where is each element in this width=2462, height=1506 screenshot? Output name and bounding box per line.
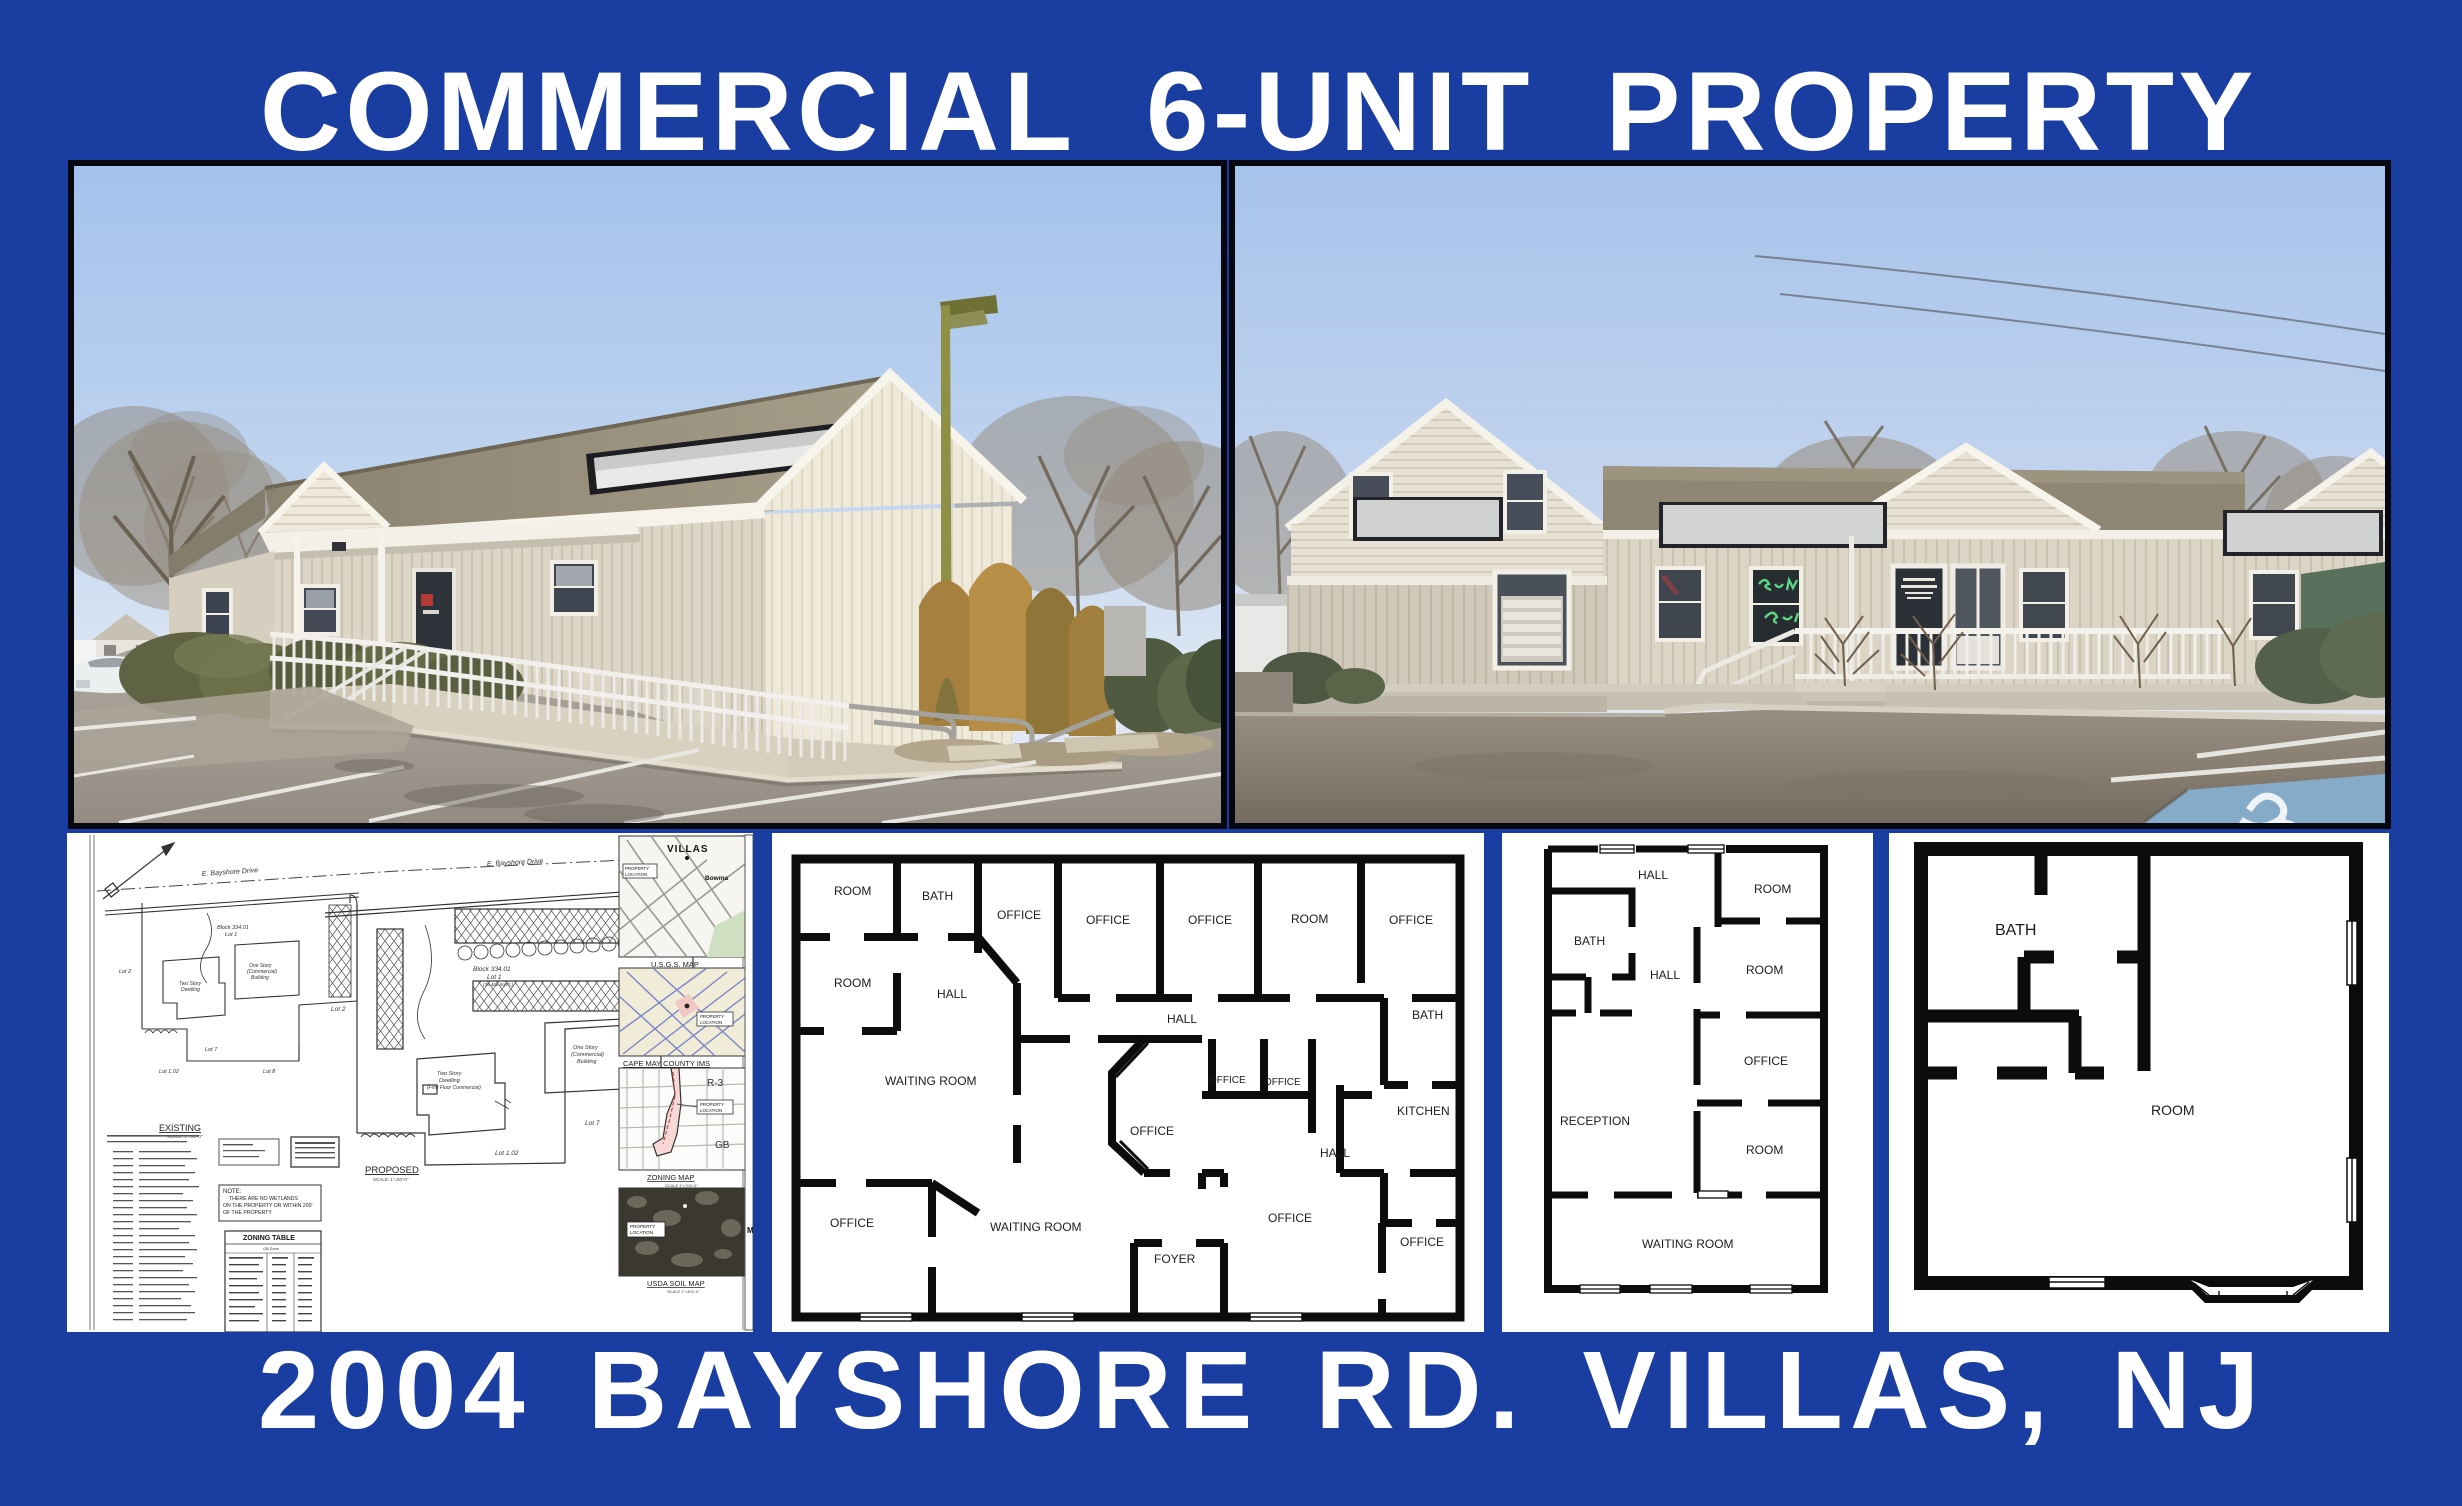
svg-text:BATH: BATH xyxy=(922,889,953,903)
svg-text:SCALE 1"=700'-0": SCALE 1"=700'-0" xyxy=(665,1183,698,1188)
svg-text:THERE ARE NO WETLANDS: THERE ARE NO WETLANDS xyxy=(229,1196,298,1202)
svg-text:ROOM: ROOM xyxy=(834,976,871,990)
svg-text:M: M xyxy=(747,1226,753,1235)
svg-text:(First Floor Commercial): (First Floor Commercial) xyxy=(427,1085,481,1091)
svg-text:Dwelling: Dwelling xyxy=(181,987,200,993)
svg-text:Block 334.01: Block 334.01 xyxy=(473,966,511,973)
svg-text:SCALE 1"=400'-0": SCALE 1"=400'-0" xyxy=(667,1289,700,1294)
svg-text:OFFICE: OFFICE xyxy=(1264,1077,1301,1088)
svg-text:R-3: R-3 xyxy=(707,1078,724,1089)
svg-text:OFFICE: OFFICE xyxy=(1389,913,1433,927)
svg-text:OFFICE: OFFICE xyxy=(997,908,1041,922)
svg-text:Building: Building xyxy=(577,1059,598,1065)
svg-text:HALL: HALL xyxy=(1638,868,1668,882)
svg-text:Lot 1: Lot 1 xyxy=(487,974,502,981)
svg-text:KITCHEN: KITCHEN xyxy=(1397,1104,1450,1118)
svg-text:Two Story: Two Story xyxy=(437,1071,463,1077)
svg-text:OFFICE: OFFICE xyxy=(1086,913,1130,927)
svg-text:ROOM: ROOM xyxy=(1746,963,1783,977)
svg-text:RECEPTION: RECEPTION xyxy=(1560,1114,1630,1128)
svg-text:OFFICE: OFFICE xyxy=(1209,1075,1246,1086)
svg-text:HALL: HALL xyxy=(1167,1012,1197,1026)
svg-text:ROOM: ROOM xyxy=(1291,912,1328,926)
svg-text:(39,462 Sq.Ft.): (39,462 Sq.Ft.) xyxy=(483,982,514,987)
svg-text:PROPOSED: PROPOSED xyxy=(365,1165,419,1176)
svg-text:VILLAS: VILLAS xyxy=(667,844,709,855)
svg-text:E. Bayshore Drive: E. Bayshore Drive xyxy=(202,867,259,878)
svg-text:OFFICE: OFFICE xyxy=(1400,1235,1444,1249)
svg-text:Lot 2: Lot 2 xyxy=(119,969,131,975)
svg-text:CAPE MAY COUNTY IMS: CAPE MAY COUNTY IMS xyxy=(623,1059,710,1068)
svg-text:WAITING ROOM: WAITING ROOM xyxy=(990,1220,1082,1234)
svg-text:Dwelling: Dwelling xyxy=(439,1078,461,1084)
svg-text:LOCATION: LOCATION xyxy=(625,872,647,877)
svg-text:PROPERTY: PROPERTY xyxy=(700,1102,724,1107)
svg-text:LOCATION: LOCATION xyxy=(630,1230,653,1235)
svg-text:OFFICE: OFFICE xyxy=(1744,1054,1788,1068)
svg-text:ROOM: ROOM xyxy=(1746,1143,1783,1157)
svg-text:ROOM: ROOM xyxy=(1754,882,1791,896)
svg-text:HALL: HALL xyxy=(937,987,967,1001)
svg-text:Block 334.01: Block 334.01 xyxy=(217,925,249,931)
svg-text:PROPERTY: PROPERTY xyxy=(625,866,649,871)
svg-text:BATH: BATH xyxy=(1995,922,2036,939)
svg-text:HALL: HALL xyxy=(1320,1146,1350,1160)
svg-text:ROOM: ROOM xyxy=(2151,1102,2195,1118)
svg-text:ZONING TABLE: ZONING TABLE xyxy=(243,1235,295,1242)
svg-text:PROPERTY: PROPERTY xyxy=(700,1014,724,1019)
svg-text:Lot 7: Lot 7 xyxy=(585,1120,600,1127)
svg-text:HALL: HALL xyxy=(1650,968,1680,982)
svg-text:PROPERTY: PROPERTY xyxy=(630,1224,655,1229)
svg-text:One Story: One Story xyxy=(573,1045,599,1051)
svg-text:WAITING ROOM: WAITING ROOM xyxy=(1642,1237,1734,1251)
svg-text:(Commercial): (Commercial) xyxy=(571,1052,604,1058)
svg-text:Building: Building xyxy=(251,975,269,981)
svg-text:Bowma: Bowma xyxy=(705,875,729,882)
svg-text:WAITING ROOM: WAITING ROOM xyxy=(885,1074,977,1088)
svg-text:NOTE:: NOTE: xyxy=(223,1189,242,1195)
svg-text:ZONING MAP: ZONING MAP xyxy=(647,1173,695,1182)
svg-text:SCALE: 1"=50'-0": SCALE: 1"=50'-0" xyxy=(373,1177,409,1182)
svg-text:Lot 1.02: Lot 1.02 xyxy=(159,1069,179,1075)
svg-text:OFFICE: OFFICE xyxy=(1268,1211,1312,1225)
svg-text:GB Zone: GB Zone xyxy=(263,1246,280,1251)
svg-text:BATH: BATH xyxy=(1574,934,1605,948)
svg-text:OF THE PROPERTY: OF THE PROPERTY xyxy=(223,1210,272,1216)
svg-text:BATH: BATH xyxy=(1412,1008,1443,1022)
svg-text:Lot 1.02: Lot 1.02 xyxy=(495,1150,519,1157)
svg-text:LOCATION: LOCATION xyxy=(700,1020,722,1025)
svg-text:USDA SOIL MAP: USDA SOIL MAP xyxy=(647,1279,705,1288)
svg-text:E. Bayshore Drive: E. Bayshore Drive xyxy=(487,858,544,868)
svg-text:ROOM: ROOM xyxy=(834,884,871,898)
svg-text:Lot 1: Lot 1 xyxy=(225,932,237,938)
svg-text:OFFICE: OFFICE xyxy=(1130,1124,1174,1138)
svg-text:Lot 7: Lot 7 xyxy=(205,1047,218,1053)
svg-text:ON THE PROPERTY OR WITHIN 200': ON THE PROPERTY OR WITHIN 200' xyxy=(223,1203,312,1209)
svg-text:LOCATION: LOCATION xyxy=(700,1108,722,1113)
svg-text:FOYER: FOYER xyxy=(1154,1252,1196,1266)
svg-text:GB: GB xyxy=(715,1140,730,1151)
svg-text:OFFICE: OFFICE xyxy=(830,1216,874,1230)
svg-text:Lot 2: Lot 2 xyxy=(331,1006,346,1013)
svg-text:EXISTING: EXISTING xyxy=(159,1123,201,1133)
svg-text:Lot 8: Lot 8 xyxy=(263,1069,276,1075)
svg-text:OFFICE: OFFICE xyxy=(1188,913,1232,927)
